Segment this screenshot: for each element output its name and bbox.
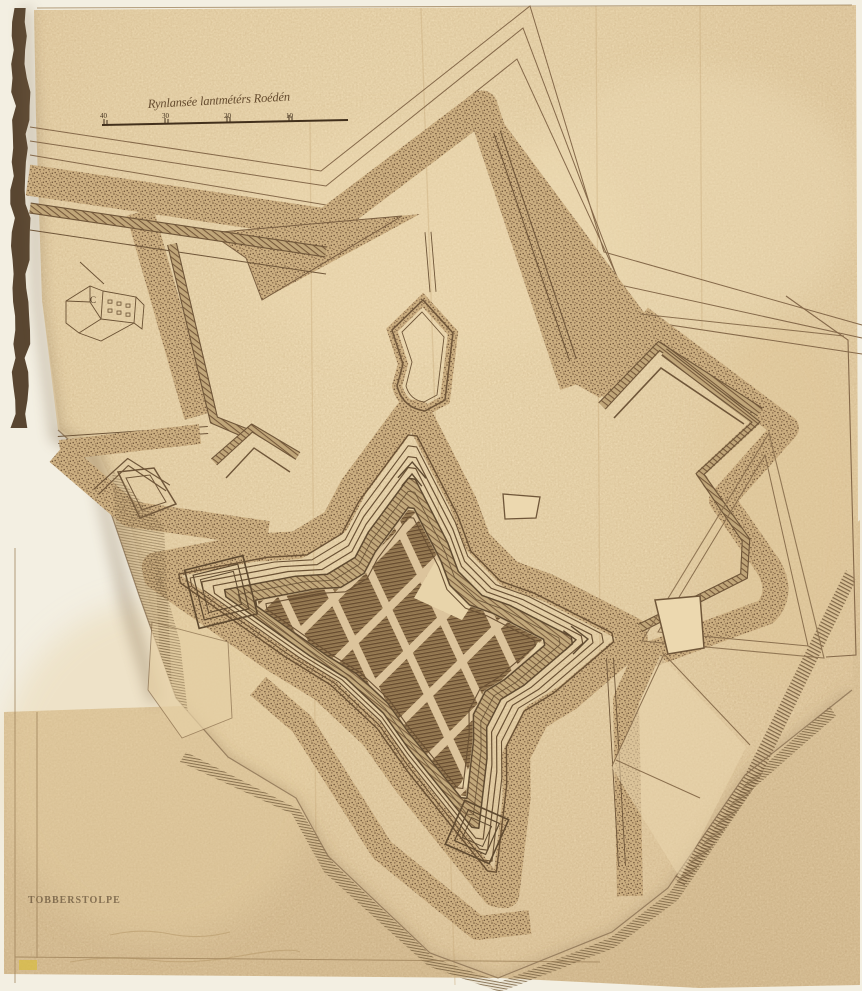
svg-text:20: 20 <box>224 112 232 120</box>
svg-text:30: 30 <box>162 112 170 120</box>
svg-text:TOBBERSTOLPE: TOBBERSTOLPE <box>28 895 121 906</box>
svg-text:10: 10 <box>286 112 294 120</box>
svg-text:C: C <box>90 295 96 305</box>
svg-text:40: 40 <box>100 112 108 120</box>
